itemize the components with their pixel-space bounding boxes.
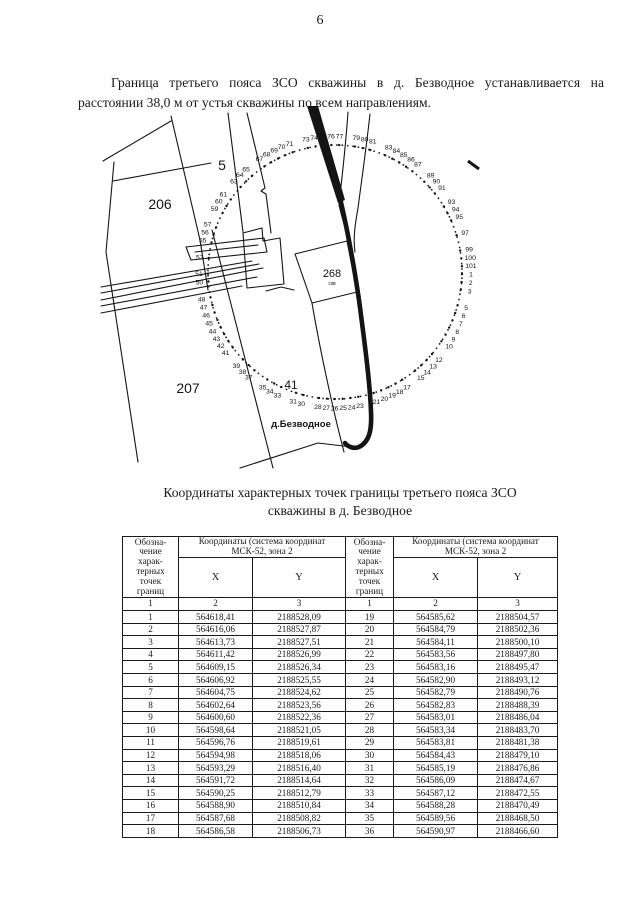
coordinate-cell: 564584,11 bbox=[394, 636, 478, 649]
coordinate-cell: 564616,06 bbox=[179, 623, 253, 636]
boundary-point-dot bbox=[247, 364, 249, 366]
boundary-point-dot bbox=[391, 158, 393, 160]
boundary-point-dot bbox=[227, 340, 229, 342]
header-y-left: Y bbox=[253, 558, 346, 598]
boundary-point-label: 93 bbox=[448, 199, 456, 206]
boundary-point-dot bbox=[212, 234, 214, 236]
boundary-point-dot bbox=[230, 198, 232, 200]
boundary-point-label: 57 bbox=[204, 221, 212, 228]
coordinate-cell: 20 bbox=[346, 623, 394, 636]
table-row: 10564598,642188521,0528564583,342188483,… bbox=[123, 724, 558, 737]
boundary-point-label: 2 bbox=[469, 280, 473, 287]
coordinate-cell: 2188506,73 bbox=[253, 825, 346, 838]
coordinate-cell: 564606,92 bbox=[179, 673, 253, 686]
table-row: 2564616,062188527,8720564584,792188502,3… bbox=[123, 623, 558, 636]
boundary-point-label: 97 bbox=[461, 230, 469, 237]
boundary-point-dot bbox=[314, 145, 316, 147]
coordinate-cell: 5 bbox=[123, 661, 179, 674]
header-x-right: X bbox=[394, 558, 478, 598]
coordinate-cell: 2188479,10 bbox=[478, 749, 558, 762]
coordinate-cell: 2188466,60 bbox=[478, 825, 558, 838]
coordinate-cell: 564586,09 bbox=[394, 774, 478, 787]
boundary-point-label: 6 bbox=[462, 313, 466, 320]
coordinate-cell: 2188525,55 bbox=[253, 673, 346, 686]
coordinates-table: Обозна- чение харак- терных точек границ… bbox=[122, 536, 558, 838]
coordinate-cell: 2188500,10 bbox=[478, 636, 558, 649]
boundary-point-label: 100 bbox=[465, 255, 477, 262]
village-label: д.Безводное bbox=[271, 419, 331, 430]
parcel-label: скв bbox=[328, 281, 336, 287]
table-row: 11564596,762188519,6129564583,812188481,… bbox=[123, 736, 558, 749]
boundary-point-dot bbox=[232, 346, 234, 348]
coordinate-cell: 14 bbox=[123, 774, 179, 787]
boundary-point-dot bbox=[326, 398, 328, 400]
boundary-point-label: 38 bbox=[239, 369, 247, 376]
boundary-point-label: 55 bbox=[199, 238, 207, 245]
boundary-point-dot bbox=[446, 212, 448, 214]
table-row: 7564604,752188524,6225564582,792188490,7… bbox=[123, 686, 558, 699]
boundary-point-dot bbox=[411, 170, 413, 172]
boundary-point-dot bbox=[338, 144, 340, 146]
coordinate-cell: 564583,34 bbox=[394, 724, 478, 737]
boundary-point-label: 26 bbox=[331, 405, 339, 412]
boundary-point-label: 73 bbox=[302, 137, 310, 144]
road-fragment bbox=[468, 161, 479, 169]
boundary-point-label: 3 bbox=[468, 289, 472, 296]
coordinate-cell: 564600,60 bbox=[179, 711, 253, 724]
boundary-point-dot bbox=[213, 311, 215, 313]
table-title: Координаты характерных точек границы тре… bbox=[90, 484, 590, 519]
table-title-line2: скважины в д. Безводное bbox=[90, 502, 590, 520]
boundary-point-label: 21 bbox=[373, 399, 381, 406]
coordinate-cell: 564583,01 bbox=[394, 711, 478, 724]
coordinate-cell: 24 bbox=[346, 673, 394, 686]
coordinate-cell: 2188474,67 bbox=[478, 774, 558, 787]
boundary-point-label: 34 bbox=[266, 389, 274, 396]
coordinate-cell: 30 bbox=[346, 749, 394, 762]
boundary-point-dot bbox=[429, 186, 431, 188]
boundary-point-dot bbox=[302, 394, 304, 396]
coordinate-cell: 2188483,70 bbox=[478, 724, 558, 737]
boundary-point-dot bbox=[216, 319, 218, 321]
coordinate-cell: 2188526,99 bbox=[253, 648, 346, 661]
coordinate-cell: 2188481,38 bbox=[478, 736, 558, 749]
boundary-point-dot bbox=[387, 386, 389, 388]
coordinate-cell: 564585,19 bbox=[394, 762, 478, 775]
boundary-point-dot bbox=[420, 364, 422, 366]
boundary-point-dot bbox=[330, 144, 332, 146]
table-row: 17564587,682188508,8235564589,562188468,… bbox=[123, 812, 558, 825]
boundary-point-dot bbox=[357, 396, 359, 398]
coordinates-table-header: Обозна- чение харак- терных точек границ… bbox=[123, 537, 558, 611]
boundary-point-dot bbox=[414, 369, 416, 371]
table-row: 18564586,582188506,7336564590,972188466,… bbox=[123, 825, 558, 838]
boundary-point-dot bbox=[211, 304, 213, 306]
boundary-point-label: 10 bbox=[445, 344, 453, 351]
coordinate-cell: 564593,29 bbox=[179, 762, 253, 775]
boundary-point-label: 70 bbox=[278, 144, 286, 151]
coordinate-cell: 564582,79 bbox=[394, 686, 478, 699]
coordinate-cell: 22 bbox=[346, 648, 394, 661]
boundary-point-dot bbox=[443, 205, 445, 207]
table-title-line1: Координаты характерных точек границы тре… bbox=[90, 484, 590, 502]
coordinate-cell: 2188468,50 bbox=[478, 812, 558, 825]
boundary-point-label: 60 bbox=[215, 199, 223, 206]
table-row: 1564618,412188528,0919564585,622188504,5… bbox=[123, 611, 558, 624]
coordinate-cell: 564588,90 bbox=[179, 799, 253, 812]
boundary-point-label: 63 bbox=[230, 178, 238, 185]
coordinate-cell: 6 bbox=[123, 673, 179, 686]
coordinate-cell: 2188526,34 bbox=[253, 661, 346, 674]
coordinate-cell: 11 bbox=[123, 736, 179, 749]
coordinate-cell: 34 bbox=[346, 799, 394, 812]
boundary-point-label: 94 bbox=[452, 207, 460, 214]
coordinate-cell: 35 bbox=[346, 812, 394, 825]
coordinate-cell: 29 bbox=[346, 736, 394, 749]
boundary-point-label: 8 bbox=[455, 329, 459, 336]
coordinate-cell: 564611,42 bbox=[179, 648, 253, 661]
boundary-point-label: 30 bbox=[298, 401, 306, 408]
coordinate-cell: 564586,58 bbox=[179, 825, 253, 838]
parcel-label: 41 bbox=[284, 378, 298, 392]
coordinate-cell: 564604,75 bbox=[179, 686, 253, 699]
coordinate-cell: 564613,73 bbox=[179, 636, 253, 649]
boundary-point-label: 75 bbox=[319, 134, 327, 141]
boundary-point-dot bbox=[349, 397, 351, 399]
header-y-right: Y bbox=[478, 558, 558, 598]
boundary-point-label: 5 bbox=[464, 305, 468, 312]
coordinate-cell: 2188508,82 bbox=[253, 812, 346, 825]
table-row: 4564611,422188526,9922564583,562188497,8… bbox=[123, 648, 558, 661]
coordinate-cell: 10 bbox=[123, 724, 179, 737]
boundary-point-label: 33 bbox=[274, 393, 282, 400]
boundary-point-dot bbox=[291, 151, 293, 153]
boundary-point-dot bbox=[461, 273, 463, 275]
boundary-point-label: 47 bbox=[200, 305, 208, 312]
boundary-point-label: 31 bbox=[289, 399, 297, 406]
boundary-point-dot bbox=[219, 326, 221, 328]
coordinate-cell: 2188493,12 bbox=[478, 673, 558, 686]
header-coords-right: Координаты (система координат МСК-52, зо… bbox=[394, 537, 558, 558]
coordinate-cell: 33 bbox=[346, 787, 394, 800]
boundary-point-label: 61 bbox=[220, 192, 228, 199]
boundary-point-dot bbox=[372, 392, 374, 394]
boundary-point-label: 23 bbox=[356, 403, 364, 410]
coordinate-cell: 18 bbox=[123, 825, 179, 838]
boundary-point-dot bbox=[398, 161, 400, 163]
coordinate-cell: 2188523,56 bbox=[253, 699, 346, 712]
boundary-point-label: 59 bbox=[211, 206, 219, 213]
coordinate-cell: 2188472,55 bbox=[478, 787, 558, 800]
boundary-point-label: 43 bbox=[213, 336, 221, 343]
boundary-point-dot bbox=[273, 382, 275, 384]
coordinate-cell: 564598,64 bbox=[179, 724, 253, 737]
coordinate-cell: 28 bbox=[346, 724, 394, 737]
boundary-point-dot bbox=[401, 379, 403, 381]
coordinate-cell: 8 bbox=[123, 699, 179, 712]
boundary-point-dot bbox=[242, 358, 244, 360]
boundary-point-label: 79 bbox=[353, 135, 361, 142]
coordinate-cell: 2 bbox=[123, 623, 179, 636]
header-num: 3 bbox=[253, 598, 346, 611]
boundary-point-dot bbox=[223, 333, 225, 335]
boundary-point-dot bbox=[380, 389, 382, 391]
boundary-point-dot bbox=[245, 180, 247, 182]
boundary-point-dot bbox=[460, 281, 462, 283]
boundary-point-label: 76 bbox=[327, 133, 335, 140]
table-row: 15564590,252188512,7933564587,122188472,… bbox=[123, 787, 558, 800]
boundary-point-label: 91 bbox=[438, 185, 446, 192]
boundary-point-dot bbox=[423, 181, 425, 183]
boundary-point-label: 77 bbox=[336, 133, 344, 140]
boundary-point-label: 74 bbox=[310, 135, 318, 142]
coordinate-cell: 564596,76 bbox=[179, 736, 253, 749]
boundary-point-label: 50 bbox=[196, 280, 204, 287]
boundary-point-dot bbox=[221, 212, 223, 214]
parcel-label: 268 bbox=[323, 268, 341, 280]
boundary-point-dot bbox=[215, 226, 217, 228]
coordinate-cell: 1 bbox=[123, 611, 179, 624]
table-row: 16564588,902188510,8434564588,282188470,… bbox=[123, 799, 558, 812]
coordinate-cell: 564618,41 bbox=[179, 611, 253, 624]
coordinate-cell: 2188518,06 bbox=[253, 749, 346, 762]
boundary-point-label: 19 bbox=[388, 393, 396, 400]
table-row: 8564602,642188523,5626564582,832188488,3… bbox=[123, 699, 558, 712]
coordinate-cell: 564588,28 bbox=[394, 799, 478, 812]
table-row: 3564613,732188527,5121564584,112188500,1… bbox=[123, 636, 558, 649]
boundary-point-label: 1 bbox=[469, 272, 473, 279]
boundary-point-dot bbox=[354, 145, 356, 147]
boundary-point-label: 101 bbox=[465, 263, 477, 270]
boundary-point-label: 45 bbox=[205, 321, 213, 328]
coordinate-cell: 2188490,76 bbox=[478, 686, 558, 699]
parcel-label: 5 bbox=[218, 157, 226, 173]
boundary-point-dot bbox=[318, 397, 320, 399]
boundary-point-dot bbox=[440, 340, 442, 342]
boundary-point-label: 7 bbox=[459, 321, 463, 328]
boundary-point-dot bbox=[210, 241, 212, 243]
header-num: 3 bbox=[478, 598, 558, 611]
coordinate-cell: 564590,25 bbox=[179, 787, 253, 800]
coordinate-cell: 2188522,36 bbox=[253, 711, 346, 724]
boundary-point-label: 15 bbox=[417, 375, 425, 382]
header-coords-left: Координаты (система координат МСК-52, зо… bbox=[179, 537, 346, 558]
header-designation-left: Обозна- чение харак- терных точек границ bbox=[123, 537, 179, 598]
boundary-point-dot bbox=[270, 161, 272, 163]
header-num: 2 bbox=[179, 598, 253, 611]
road-wedge bbox=[307, 106, 345, 203]
coordinate-cell: 9 bbox=[123, 711, 179, 724]
coordinate-cell: 2188495,47 bbox=[478, 661, 558, 674]
coordinate-cell: 2188502,36 bbox=[478, 623, 558, 636]
boundary-point-dot bbox=[434, 192, 436, 194]
coordinate-cell: 564589,56 bbox=[394, 812, 478, 825]
header-num: 1 bbox=[123, 598, 179, 611]
boundary-point-dot bbox=[342, 398, 344, 400]
boundary-point-dot bbox=[405, 166, 407, 168]
coordinate-cell: 564591,72 bbox=[179, 774, 253, 787]
coordinate-cell: 564585,62 bbox=[394, 611, 478, 624]
boundary-point-dot bbox=[208, 257, 210, 259]
coordinate-cell: 564587,12 bbox=[394, 787, 478, 800]
boundary-point-label: 17 bbox=[403, 385, 411, 392]
coordinate-cell: 31 bbox=[346, 762, 394, 775]
coordinate-cell: 564590,97 bbox=[394, 825, 478, 838]
coordinate-cell: 2188504,57 bbox=[478, 611, 558, 624]
boundary-point-label: 27 bbox=[323, 405, 331, 412]
coordinate-cell: 564602,64 bbox=[179, 699, 253, 712]
coordinate-cell: 26 bbox=[346, 699, 394, 712]
boundary-point-dot bbox=[277, 157, 279, 159]
coordinate-cell: 23 bbox=[346, 661, 394, 674]
coordinate-cell: 2188527,87 bbox=[253, 623, 346, 636]
boundary-point-dot bbox=[266, 378, 268, 380]
parcel-label: 207 bbox=[176, 380, 200, 396]
boundary-point-dot bbox=[239, 186, 241, 188]
table-row: 13564593,292188516,4031564585,192188476,… bbox=[123, 762, 558, 775]
boundary-point-dot bbox=[426, 359, 428, 361]
coordinate-cell: 12 bbox=[123, 749, 179, 762]
parcel-labels: 206520741268скв bbox=[148, 157, 341, 396]
coordinate-cell: 3 bbox=[123, 636, 179, 649]
railway-lines bbox=[101, 238, 267, 313]
header-x-left: X bbox=[179, 558, 253, 598]
boundary-point-dot bbox=[461, 265, 463, 267]
coordinate-cell: 564609,15 bbox=[179, 661, 253, 674]
coordinate-cell: 2188524,62 bbox=[253, 686, 346, 699]
boundary-point-dot bbox=[334, 398, 336, 400]
table-row: 5564609,152188526,3423564583,162188495,4… bbox=[123, 661, 558, 674]
boundary-point-label: 51 bbox=[195, 271, 203, 278]
boundary-point-label: 35 bbox=[259, 384, 267, 391]
boundary-point-label: 44 bbox=[209, 328, 217, 335]
boundary-point-dot bbox=[448, 326, 450, 328]
coordinate-cell: 564594,98 bbox=[179, 749, 253, 762]
boundary-point-dot bbox=[207, 273, 209, 275]
coordinate-cell: 32 bbox=[346, 774, 394, 787]
coordinate-cell: 2188488,39 bbox=[478, 699, 558, 712]
coordinate-cell: 2188519,61 bbox=[253, 736, 346, 749]
boundary-point-dot bbox=[460, 289, 462, 291]
coordinate-cell: 564584,43 bbox=[394, 749, 478, 762]
table-row: 9564600,602188522,3627564583,012188486,0… bbox=[123, 711, 558, 724]
table-row: 12564594,982188518,0630564584,432188479,… bbox=[123, 749, 558, 762]
boundary-point-dot bbox=[431, 353, 433, 355]
boundary-point-dot bbox=[280, 386, 282, 388]
boundary-point-dot bbox=[384, 154, 386, 156]
boundary-point-label: 95 bbox=[456, 214, 464, 221]
boundary-point-dot bbox=[263, 165, 265, 167]
boundary-point-label: 42 bbox=[217, 343, 225, 350]
map-container: 1235678910121314151718192021232425262728… bbox=[95, 104, 545, 476]
coordinate-cell: 21 bbox=[346, 636, 394, 649]
coordinate-cell: 2188497,80 bbox=[478, 648, 558, 661]
coordinate-cell: 4 bbox=[123, 648, 179, 661]
coordinate-cell: 564583,16 bbox=[394, 661, 478, 674]
boundary-point-label: 65 bbox=[242, 167, 250, 174]
boundary-point-label: 99 bbox=[465, 246, 473, 253]
boundary-point-dot bbox=[455, 234, 457, 236]
boundary-point-label: 83 bbox=[385, 144, 393, 151]
boundary-point-label: 48 bbox=[198, 296, 206, 303]
coordinate-cell: 2188521,05 bbox=[253, 724, 346, 737]
coordinate-cell: 17 bbox=[123, 812, 179, 825]
coordinates-table-body: 1564618,412188528,0919564585,622188504,5… bbox=[123, 611, 558, 838]
coordinate-cell: 564584,79 bbox=[394, 623, 478, 636]
boundary-point-label: 24 bbox=[348, 404, 356, 411]
boundary-point-dot bbox=[207, 280, 209, 282]
coordinate-cell: 564582,90 bbox=[394, 673, 478, 686]
boundary-point-label: 20 bbox=[381, 396, 389, 403]
coordinate-cell: 15 bbox=[123, 787, 179, 800]
boundary-point-label: 25 bbox=[339, 405, 347, 412]
table-row: 6564606,922188525,5524564582,902188493,1… bbox=[123, 673, 558, 686]
header-num: 1 bbox=[346, 598, 394, 611]
boundary-point-label: 9 bbox=[452, 336, 456, 343]
coordinate-cell: 2188516,40 bbox=[253, 762, 346, 775]
boundary-point-dot bbox=[284, 154, 286, 156]
coordinate-cell: 16 bbox=[123, 799, 179, 812]
coordinate-cell: 2188527,51 bbox=[253, 636, 346, 649]
boundary-point-label: 87 bbox=[414, 162, 422, 169]
boundary-point-dot bbox=[253, 369, 255, 371]
coordinate-cell: 36 bbox=[346, 825, 394, 838]
coordinate-cell: 2188510,84 bbox=[253, 799, 346, 812]
map-drawing: 1235678910121314151718192021232425262728… bbox=[95, 104, 545, 476]
boundary-point-dot bbox=[444, 333, 446, 335]
table-row: 14564591,722188514,6432564586,092188474,… bbox=[123, 774, 558, 787]
coordinate-cell: 564583,56 bbox=[394, 648, 478, 661]
boundary-point-dot bbox=[362, 147, 364, 149]
page-number: 6 bbox=[0, 13, 640, 29]
boundary-point-label: 18 bbox=[396, 389, 404, 396]
boundary-point-dot bbox=[460, 257, 462, 259]
header-num: 2 bbox=[394, 598, 478, 611]
boundary-point-label: 53 bbox=[196, 254, 204, 261]
coordinate-cell: 2188514,64 bbox=[253, 774, 346, 787]
coordinate-cell: 13 bbox=[123, 762, 179, 775]
boundary-point-dot bbox=[450, 219, 452, 221]
coordinate-cell: 27 bbox=[346, 711, 394, 724]
coordinate-cell: 25 bbox=[346, 686, 394, 699]
boundary-point-dot bbox=[307, 147, 309, 149]
boundary-point-label: 81 bbox=[369, 139, 377, 146]
boundary-point-dot bbox=[322, 144, 324, 146]
coordinate-cell: 2188486,04 bbox=[478, 711, 558, 724]
boundary-point-dot bbox=[451, 319, 453, 321]
document-page: { "page": { "number": "6" }, "intro_para… bbox=[0, 0, 640, 905]
parcel-boundaries bbox=[103, 113, 357, 468]
boundary-point-dot bbox=[369, 149, 371, 151]
boundary-point-label: 39 bbox=[233, 363, 241, 370]
header-designation-right: Обозна- чение харак- терных точек границ bbox=[346, 537, 394, 598]
boundary-point-dot bbox=[225, 205, 227, 207]
coordinate-cell: 2188476,86 bbox=[478, 762, 558, 775]
coordinate-cell: 2188470,49 bbox=[478, 799, 558, 812]
boundary-point-dot bbox=[209, 296, 211, 298]
parcel-label: 206 bbox=[148, 196, 172, 212]
boundary-point-dot bbox=[456, 304, 458, 306]
coordinate-cell: 564587,68 bbox=[179, 812, 253, 825]
coordinate-cell: 2188528,09 bbox=[253, 611, 346, 624]
boundary-point-dot bbox=[454, 312, 456, 314]
boundary-point-dot bbox=[251, 175, 253, 177]
boundary-point-dot bbox=[394, 383, 396, 385]
coordinate-cell: 564582,83 bbox=[394, 699, 478, 712]
boundary-point-dot bbox=[459, 249, 461, 251]
coordinate-cell: 7 bbox=[123, 686, 179, 699]
boundary-point-label: 41 bbox=[222, 350, 230, 357]
